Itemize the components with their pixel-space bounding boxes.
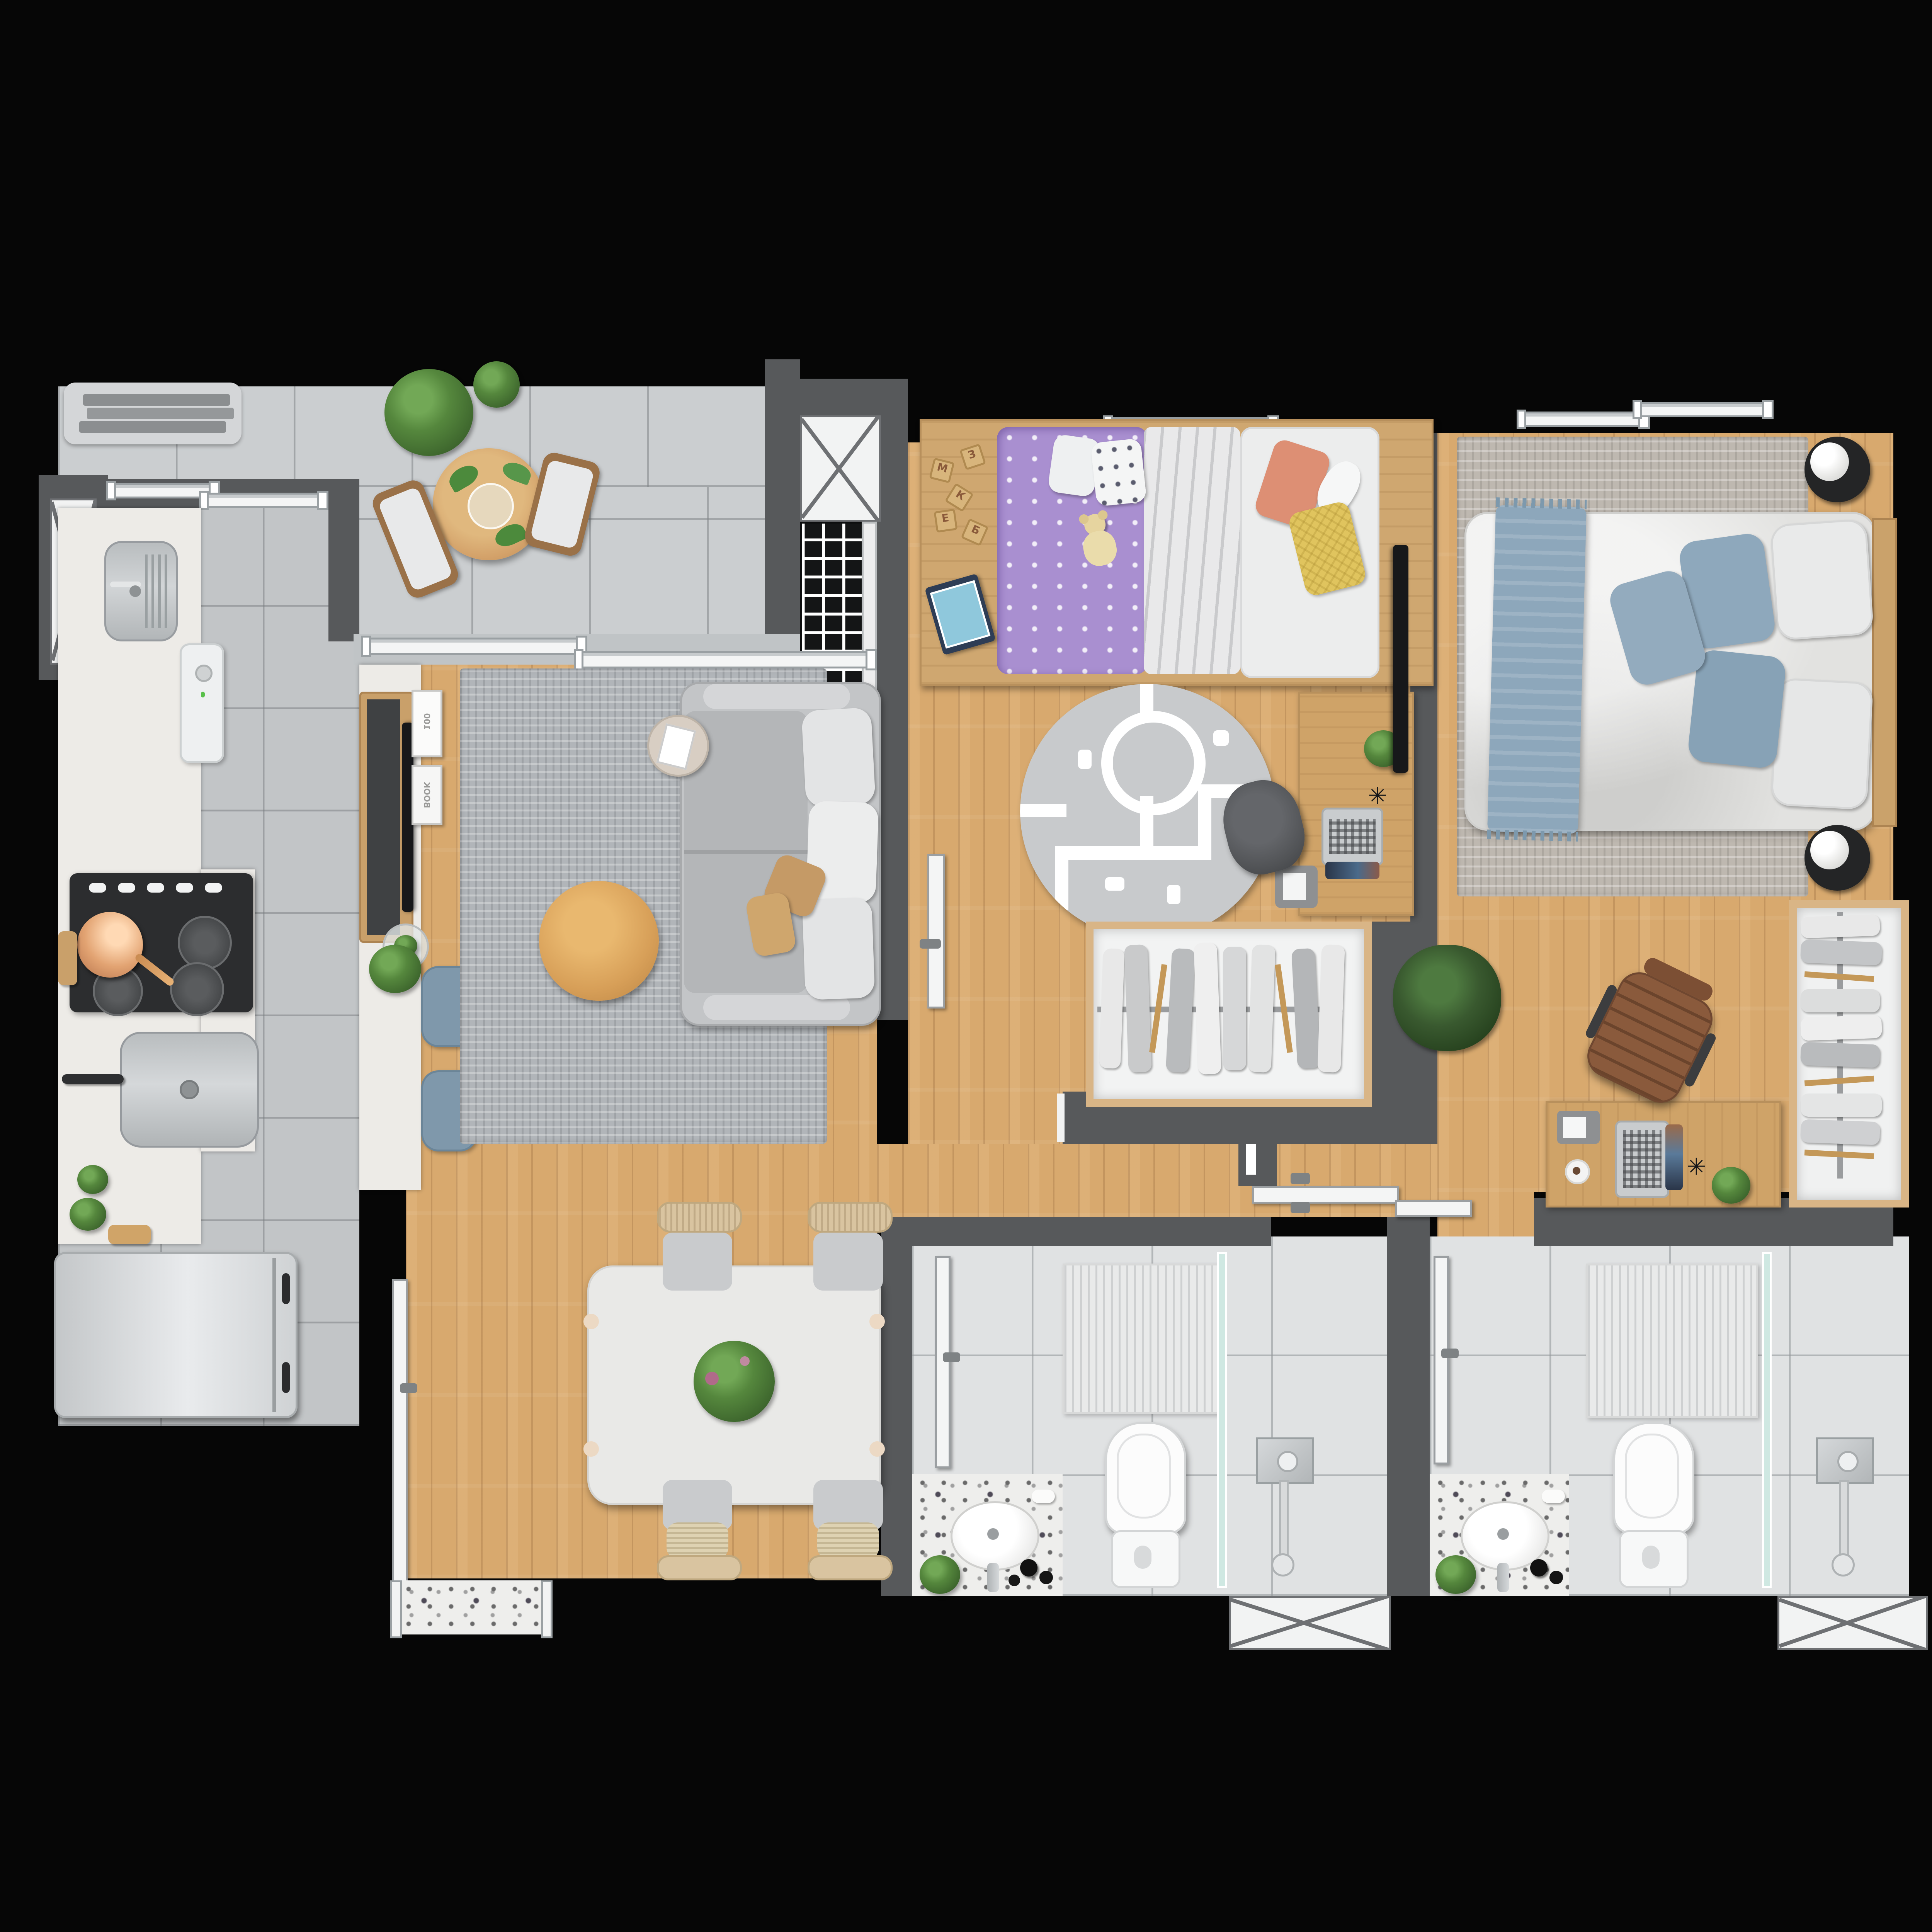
master-bath-door-leaf <box>1395 1200 1472 1217</box>
table-peg <box>583 1314 599 1329</box>
master-pillow-white <box>1770 678 1874 810</box>
herb-plant-2 <box>70 1198 106 1231</box>
back-cushion <box>801 707 876 807</box>
toy-block-letter: М <box>935 463 949 476</box>
road-segment <box>1055 860 1068 910</box>
toy-block-letter: Е <box>941 514 950 526</box>
kitchen-sink <box>120 1032 259 1148</box>
kids-blanket <box>1144 427 1240 674</box>
balcony-sliding-door-2 <box>576 651 873 668</box>
sink-faucet <box>1497 1563 1509 1592</box>
balcony-sliding-door <box>363 638 583 654</box>
chair-cushion <box>663 1233 732 1291</box>
master-laptop-screen <box>1665 1124 1683 1190</box>
cooktop-knob <box>176 883 193 893</box>
sink-drain <box>1497 1528 1509 1540</box>
drain-dot <box>180 1080 199 1099</box>
shower-head <box>1832 1553 1855 1577</box>
road-icon <box>1105 877 1124 891</box>
road-segment <box>1198 792 1211 860</box>
door-handle-u <box>1291 1173 1310 1184</box>
cosmetic-jar <box>1020 1559 1037 1577</box>
balcony-plant-large <box>384 369 473 456</box>
master-window <box>1519 412 1646 426</box>
road-ring <box>1101 711 1206 815</box>
chair-backrest <box>657 1555 742 1580</box>
toilet-seat-line <box>1117 1434 1171 1519</box>
table-peg <box>583 1441 599 1457</box>
entry-threshold <box>398 1580 541 1634</box>
clothes-item <box>1248 944 1275 1073</box>
bathroom2-vanity <box>1430 1474 1569 1596</box>
sofa <box>680 682 877 1022</box>
coffee-table-book-2: BOOK <box>412 765 442 825</box>
book-label: BOOK <box>422 781 432 808</box>
clothes-item <box>1317 944 1345 1073</box>
desk-plant <box>1712 1167 1750 1204</box>
flower-accent <box>705 1372 719 1385</box>
flush-button <box>1642 1546 1660 1569</box>
picture-book-cover <box>930 580 991 648</box>
shower-head <box>1271 1553 1294 1577</box>
laundry-sink <box>104 541 178 641</box>
door-handle <box>943 1352 960 1362</box>
entry-door-leaf <box>392 1279 408 1584</box>
duct-shaft-marker <box>800 415 881 522</box>
toy-block-letter: К <box>953 490 966 504</box>
clothes-item <box>1291 948 1321 1069</box>
entry-jamb <box>390 1580 402 1638</box>
cooktop-knob <box>89 883 106 893</box>
refrigerator <box>54 1252 298 1418</box>
master-window-2 <box>1634 402 1770 417</box>
dining-chair <box>649 1202 746 1294</box>
entry-door-handle <box>400 1383 417 1393</box>
chair-cushion <box>813 1233 883 1291</box>
dining-chair <box>649 1468 746 1580</box>
herb-plant <box>77 1165 108 1194</box>
floor-plan-canvas: 100 BOOK <box>0 0 1932 1932</box>
table-peg <box>869 1314 885 1329</box>
blue-throw-blanket <box>1487 505 1587 834</box>
wall-balcony-kitchen-divider <box>328 479 359 641</box>
clothes-item <box>1801 989 1880 1012</box>
living-hall-door-leaf <box>927 854 944 1009</box>
wall-living-kids-west <box>877 379 908 1020</box>
chair-backrest <box>808 1202 893 1233</box>
clothes-item <box>1800 914 1880 938</box>
master-wardrobe <box>1789 900 1909 1207</box>
toy-block-letter: З <box>967 449 978 463</box>
ottoman <box>539 881 659 1001</box>
chair-wicker-pad <box>667 1522 728 1559</box>
clothes-item <box>1099 948 1125 1069</box>
clothes-item <box>1800 939 1882 965</box>
clothes-item <box>1800 1015 1882 1041</box>
shower-hose <box>1839 1480 1849 1561</box>
cosmetic-jar <box>1039 1571 1053 1584</box>
cosmetic-jar <box>1549 1571 1563 1584</box>
table-glass-center <box>468 483 514 529</box>
clothes-item <box>1194 942 1221 1075</box>
sink-faucet <box>62 1074 124 1084</box>
toilet <box>1105 1422 1182 1588</box>
burner <box>170 962 224 1016</box>
hall-door-jamb <box>1246 1144 1256 1175</box>
shower-mixer-plate <box>1256 1437 1314 1484</box>
clothes-item <box>1801 1094 1882 1117</box>
side-table <box>647 715 709 777</box>
cooktop <box>70 873 253 1012</box>
bed-headboard <box>1872 518 1897 827</box>
road-icon <box>1078 750 1092 769</box>
nightstand-tray <box>1804 825 1870 891</box>
fridge-handle <box>282 1362 290 1393</box>
back-cushion <box>802 897 875 1000</box>
bathroom1-door-leaf <box>935 1256 951 1468</box>
fridge-handle <box>282 1273 290 1304</box>
kids-laptop-screen <box>1325 862 1379 879</box>
cooktop-knob <box>118 883 135 893</box>
washboard-ridges <box>145 554 168 628</box>
dining-chair <box>800 1202 896 1294</box>
toy-block-letter: Б <box>969 524 981 538</box>
shower-drain-duct <box>1777 1596 1928 1650</box>
balcony-plant-small <box>473 361 520 408</box>
throw-fringe <box>1496 497 1587 509</box>
chair-backrest <box>808 1555 893 1580</box>
pothos-plant <box>369 945 421 993</box>
door-handle-u <box>1291 1202 1310 1213</box>
shower-drain-duct <box>1229 1596 1391 1650</box>
bathroom2-door-leaf <box>1434 1256 1449 1464</box>
bathroom1-vanity <box>912 1474 1063 1596</box>
pen-holder-icon: ✳ <box>1368 784 1391 808</box>
hall-door-leaf <box>1252 1186 1399 1204</box>
burner <box>178 916 232 970</box>
book-label: 100 <box>422 708 432 735</box>
serving-boards <box>108 1225 151 1244</box>
kids-laptop <box>1321 808 1383 866</box>
road-segment <box>1140 796 1153 854</box>
toilet-seat-line <box>1625 1434 1679 1519</box>
shower-mixer-plate <box>1816 1437 1874 1484</box>
table-lamp <box>1810 442 1849 480</box>
nightstand-tray <box>1804 437 1870 502</box>
magazine <box>656 723 696 770</box>
road-segment <box>1020 804 1066 817</box>
shower-hose <box>1279 1480 1289 1561</box>
flush-button <box>1134 1546 1151 1569</box>
desk-notepad <box>1557 1111 1600 1144</box>
sofa-seat-split <box>684 850 808 853</box>
clothes-item <box>1800 1119 1880 1145</box>
sink-faucet <box>987 1563 999 1592</box>
clothes-item <box>1124 944 1151 1073</box>
washer-knob <box>195 665 213 682</box>
toilet <box>1613 1422 1690 1588</box>
toy-block: Е <box>934 509 957 532</box>
console-inset <box>367 699 400 935</box>
coffee-table-book: 100 <box>412 690 442 757</box>
soap-dish <box>1032 1490 1055 1503</box>
washer-indicator <box>200 692 205 697</box>
wall-hall-door-stub <box>1238 1140 1277 1186</box>
vanity-plant <box>1435 1555 1476 1594</box>
sofa-armrest <box>703 684 850 709</box>
hallway-floor <box>877 1144 1437 1217</box>
desk-mousepad <box>1275 866 1318 908</box>
vanity-plant <box>920 1555 960 1594</box>
bath-mat <box>1586 1264 1758 1418</box>
wall-bath-divider <box>1387 1217 1430 1596</box>
road-segment <box>1055 846 1206 860</box>
note-sheet <box>1283 873 1306 900</box>
ac-fin <box>83 394 230 405</box>
clothes-item <box>1166 948 1196 1073</box>
master-laptop <box>1615 1121 1669 1198</box>
kids-pillow-drops <box>1090 438 1147 507</box>
kids-doorway-floor <box>908 1092 1063 1144</box>
cosmetic-jar <box>1009 1575 1020 1586</box>
cosmetic-jar <box>1530 1559 1548 1577</box>
pen-holder-icon: ✳ <box>1687 1155 1710 1179</box>
table-peg <box>869 1441 885 1457</box>
drain-dot <box>129 585 141 597</box>
kitchen-window-2 <box>201 493 325 507</box>
mixer-knob <box>1277 1451 1298 1472</box>
road-icon <box>1213 730 1229 746</box>
cutting-board <box>58 931 77 985</box>
entry-jamb <box>541 1580 553 1638</box>
shower-glass-panel <box>1217 1252 1227 1588</box>
door-handle <box>920 939 941 949</box>
copper-pan <box>77 912 143 978</box>
road-icon <box>1167 885 1180 904</box>
ac-condenser-unit <box>64 383 241 444</box>
washing-machine <box>180 643 224 763</box>
kids-closet <box>1086 922 1372 1107</box>
sink-drain <box>987 1528 999 1540</box>
kids-door-jamb <box>1057 1094 1065 1142</box>
bath-mat <box>1063 1264 1221 1414</box>
road-segment <box>1140 684 1153 715</box>
master-pillow-blue <box>1687 649 1787 769</box>
shower-glass-panel <box>1762 1252 1772 1588</box>
cooktop-knob <box>205 883 222 893</box>
monstera-plant <box>1393 945 1501 1051</box>
clothes-item <box>1800 1042 1880 1068</box>
clothes-item <box>1223 947 1246 1070</box>
dining-chair <box>800 1468 896 1580</box>
chair-backrest <box>657 1202 742 1233</box>
chair-wicker-pad <box>817 1522 879 1559</box>
fridge-door-seam <box>273 1258 276 1412</box>
table-flowers <box>694 1341 775 1422</box>
ac-fin <box>79 421 226 432</box>
ac-fin <box>87 408 234 418</box>
coffee <box>1572 1166 1581 1175</box>
kids-wall-tv <box>1393 545 1408 773</box>
flower-accent <box>740 1356 750 1366</box>
master-pillow-white <box>1770 519 1874 641</box>
teddy-body <box>1080 528 1120 569</box>
cooktop-knob <box>147 883 164 893</box>
table-lamp <box>1810 830 1849 869</box>
wall-bathroom1-north <box>881 1217 1271 1246</box>
soap-dish <box>1542 1490 1565 1503</box>
door-handle <box>1441 1349 1459 1358</box>
mixer-knob <box>1837 1451 1859 1472</box>
coffee-cup <box>1565 1159 1590 1184</box>
note-sheet <box>1563 1117 1586 1138</box>
